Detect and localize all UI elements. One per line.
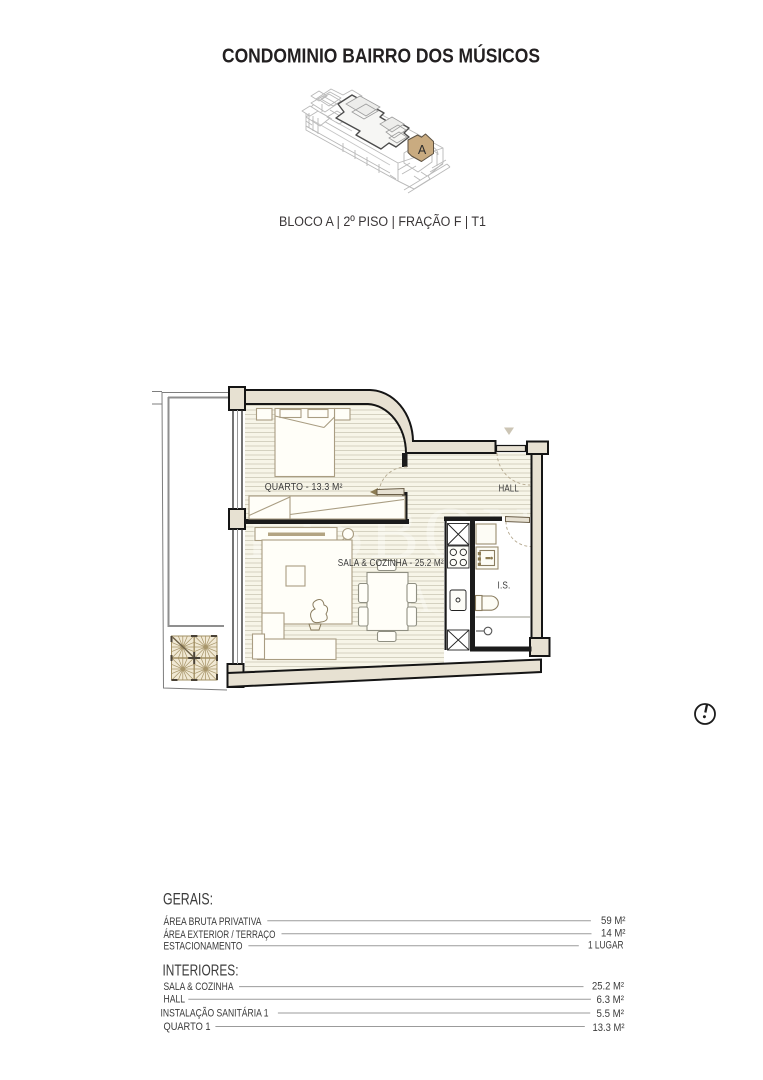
svg-text:ESTACIONAMENTO: ESTACIONAMENTO <box>164 941 243 953</box>
svg-text:14 M²: 14 M² <box>601 928 626 940</box>
svg-text:GERAIS:: GERAIS: <box>163 891 213 909</box>
svg-text:13.3 M²: 13.3 M² <box>593 1022 625 1034</box>
svg-text:1 LUGAR: 1 LUGAR <box>588 940 624 952</box>
svg-text:ÁREA BRUTA PRIVATIVA: ÁREA BRUTA PRIVATIVA <box>164 915 263 928</box>
svg-text:25.2 M²: 25.2 M² <box>592 980 624 992</box>
svg-text:ÁREA EXTERIOR / TERRAÇO: ÁREA EXTERIOR / TERRAÇO <box>164 928 276 941</box>
svg-text:6.3 M²: 6.3 M² <box>597 994 625 1006</box>
svg-text:HALL: HALL <box>164 994 186 1006</box>
svg-text:59 M²: 59 M² <box>601 915 626 927</box>
svg-text:QUARTO 1: QUARTO 1 <box>164 1021 211 1033</box>
svg-text:SALA & COZINHA: SALA & COZINHA <box>164 981 235 993</box>
svg-text:INTERIORES:: INTERIORES: <box>163 963 239 980</box>
svg-text:INSTALAÇÃO SANITÁRIA 1: INSTALAÇÃO SANITÁRIA 1 <box>161 1007 269 1020</box>
svg-text:5.5 M²: 5.5 M² <box>597 1008 625 1020</box>
